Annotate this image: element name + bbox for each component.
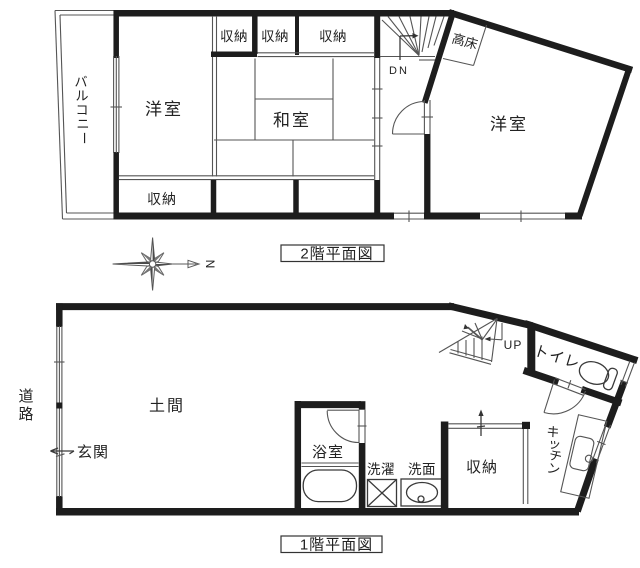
svg-text:ー: ー <box>77 131 92 144</box>
svg-text:路: 路 <box>18 406 33 423</box>
svg-text:収納: 収納 <box>220 29 248 44</box>
svg-text:収納: 収納 <box>261 29 289 44</box>
svg-text:収納: 収納 <box>466 459 498 476</box>
svg-text:土間: 土間 <box>149 397 185 415</box>
svg-text:N: N <box>203 260 217 269</box>
svg-text:ル: ル <box>75 89 88 104</box>
svg-text:収納: 収納 <box>319 29 347 44</box>
svg-text:DN: DN <box>389 65 409 77</box>
svg-text:玄関: 玄関 <box>77 444 109 461</box>
svg-text:1階平面図: 1階平面図 <box>300 537 373 554</box>
svg-text:UP: UP <box>504 338 523 352</box>
svg-text:ニ: ニ <box>76 117 89 132</box>
svg-text:コ: コ <box>75 103 88 118</box>
svg-text:2階平面図: 2階平面図 <box>300 246 373 263</box>
svg-text:道: 道 <box>18 388 33 405</box>
svg-text:和室: 和室 <box>273 111 311 130</box>
svg-text:収納: 収納 <box>147 191 177 207</box>
svg-text:洗濯: 洗濯 <box>367 462 395 477</box>
svg-text:洋室: 洋室 <box>145 100 183 119</box>
svg-text:浴室: 浴室 <box>312 444 344 461</box>
svg-text:バ: バ <box>74 75 87 90</box>
svg-text:洗面: 洗面 <box>408 462 436 477</box>
svg-text:洋室: 洋室 <box>490 115 528 134</box>
